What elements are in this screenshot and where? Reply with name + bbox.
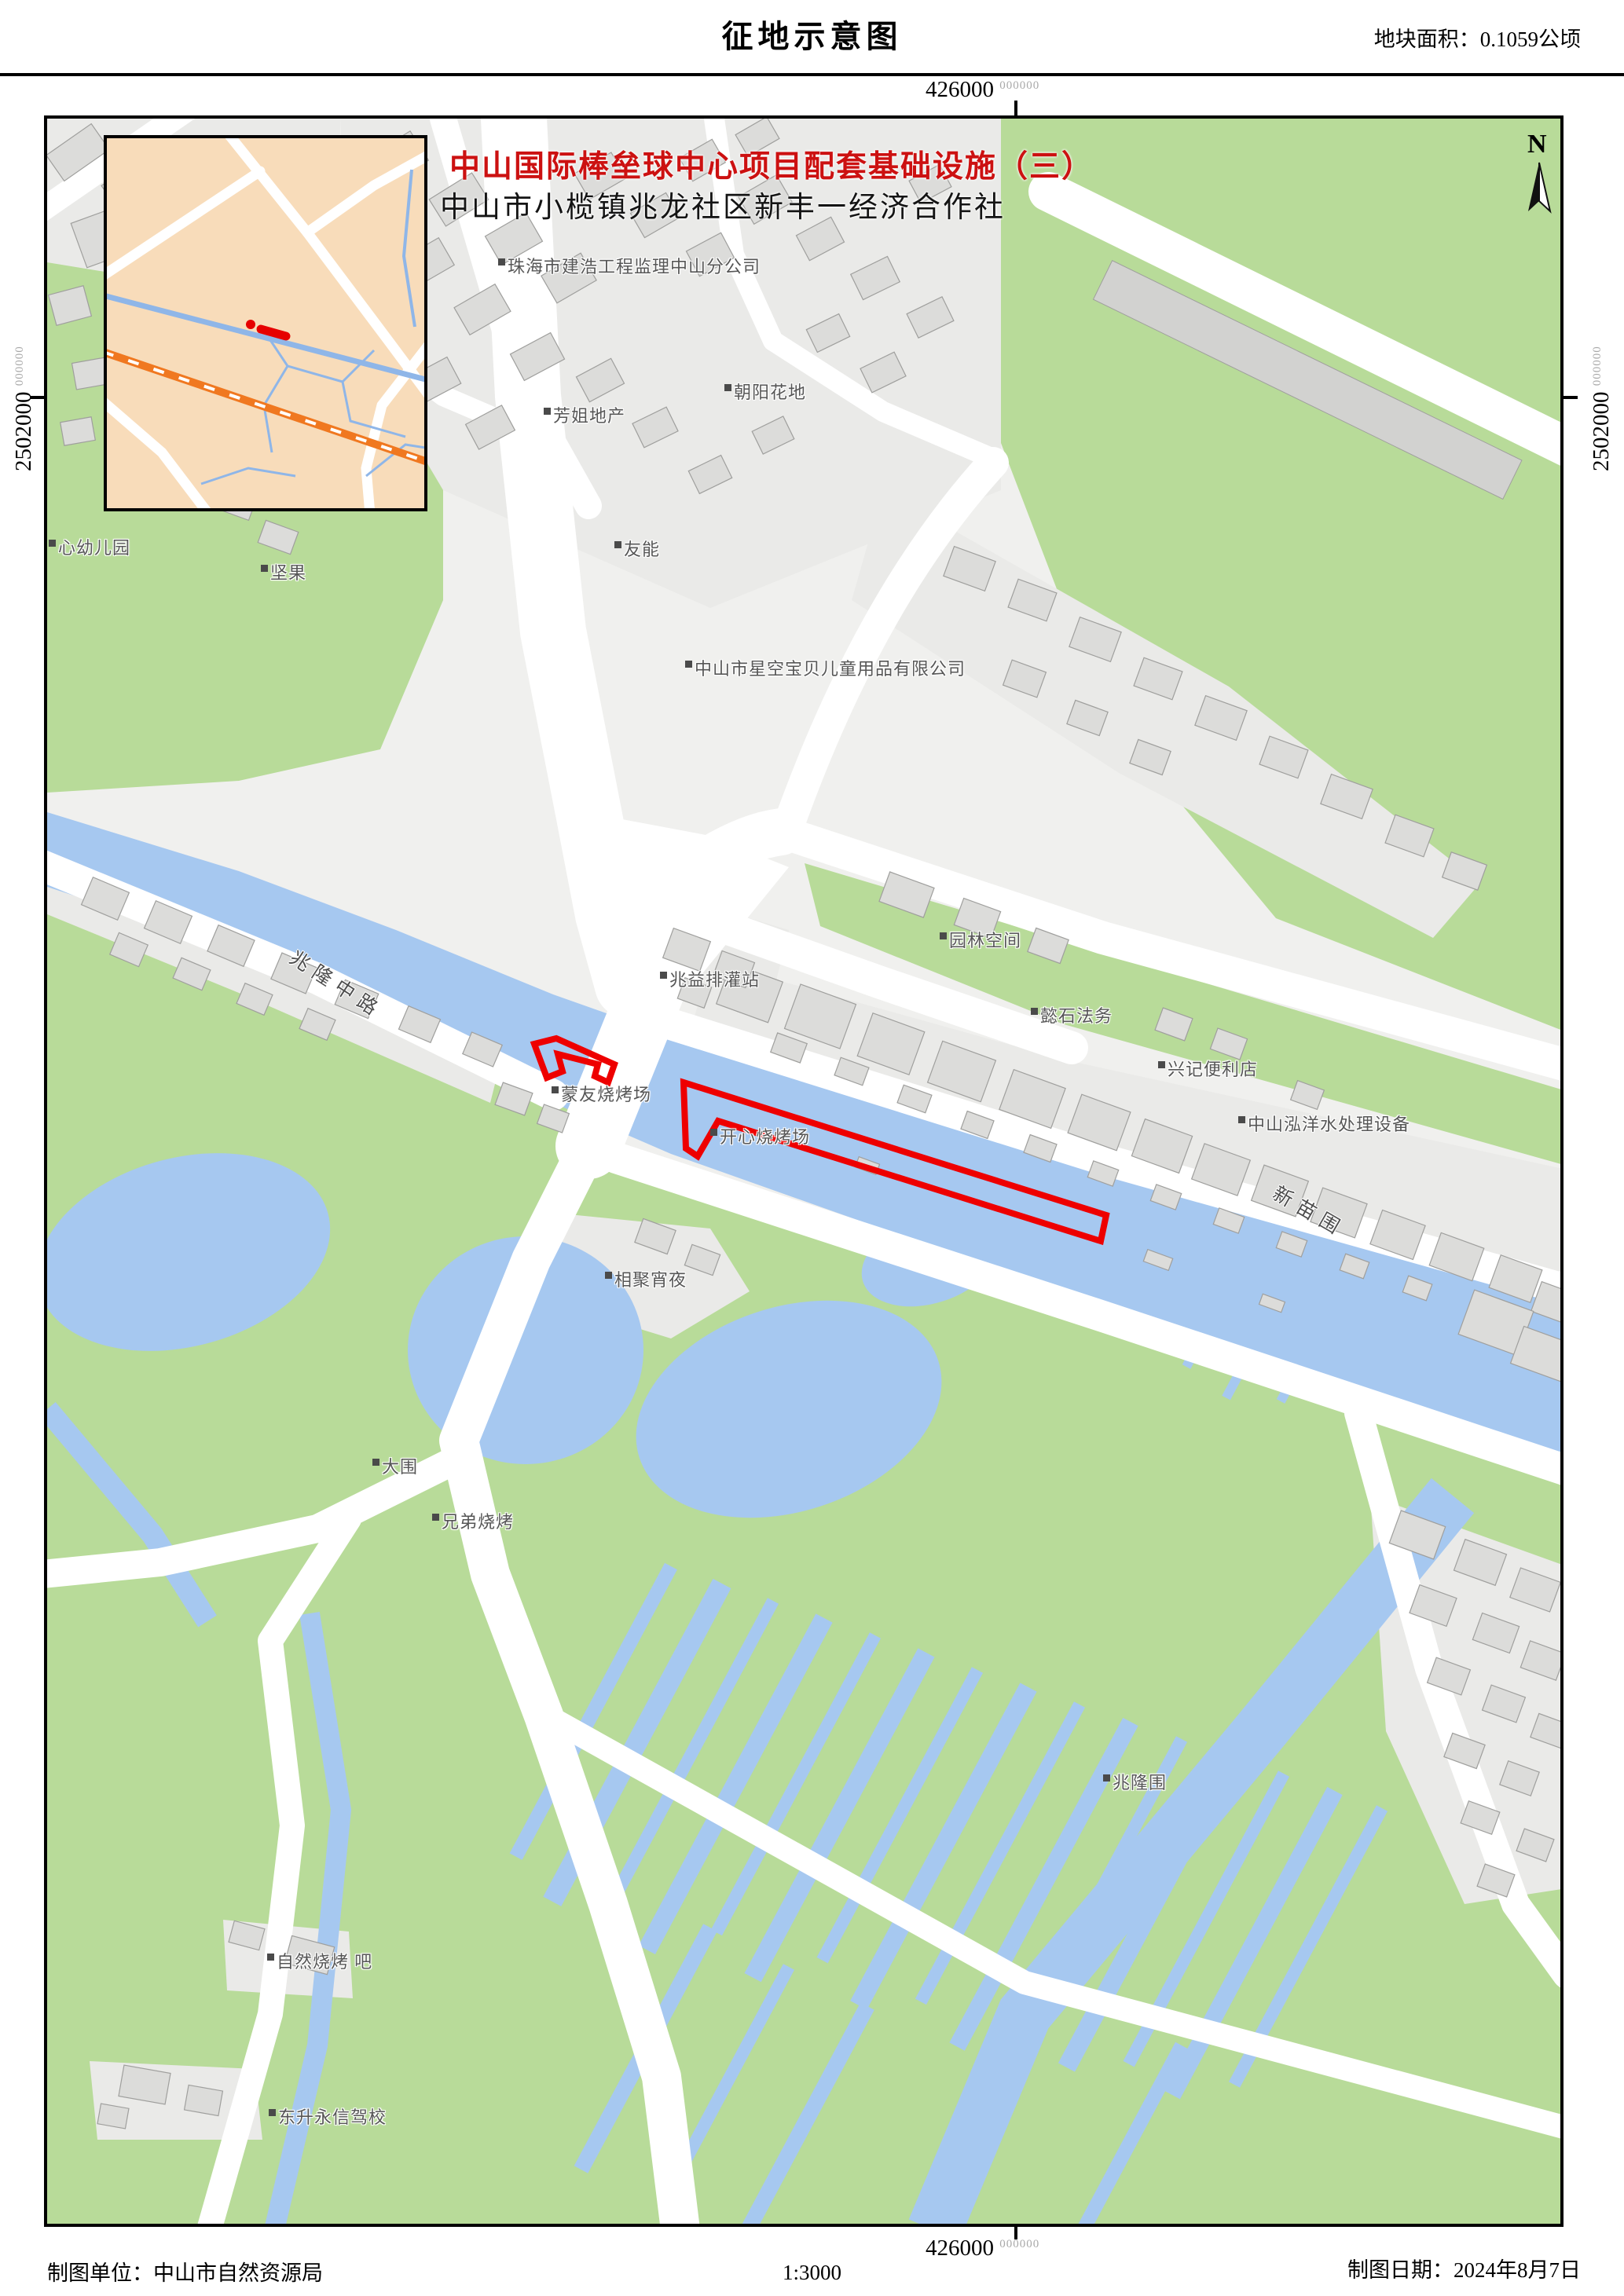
map-label-xingkong-baobei: 中山市星空宝贝儿童用品有限公司 xyxy=(685,655,966,680)
poi-label-text: 兆隆围 xyxy=(1113,1773,1167,1792)
poi-label-text: 心幼儿园 xyxy=(58,538,130,558)
grid-tick-bottom xyxy=(1014,2227,1017,2239)
poi-marker-icon xyxy=(552,1086,559,1093)
poi-label-text: 中山泓洋水处理设备 xyxy=(1248,1115,1410,1134)
grid-tick-right xyxy=(1564,396,1578,399)
map-label-yishi-fawu: 懿石法务 xyxy=(1031,1002,1113,1027)
parcel-area-label: 地块面积：0.1059公顷 xyxy=(1374,22,1581,53)
map-label-zhaoyi-paiguanzhan: 兆益排灌站 xyxy=(660,966,760,991)
project-subtitle: 中山市小榄镇兆龙社区新丰一经济合作社 xyxy=(440,183,1006,225)
poi-marker-icon xyxy=(49,540,56,547)
poi-label-text: 东升永信驾校 xyxy=(278,2107,387,2127)
map-label-youneng: 友能 xyxy=(614,536,660,561)
poi-label-text: 中山市星空宝贝儿童用品有限公司 xyxy=(695,659,966,679)
poi-marker-icon xyxy=(710,1129,717,1136)
poi-label-text: 坚果 xyxy=(270,563,306,583)
grid-coordinate-bottom: 426000 000000 xyxy=(926,2236,1039,2261)
poi-label-text: 珠海市建浩工程监理中山分公司 xyxy=(508,257,761,276)
map-label-zhaolong-wei: 兆隆围 xyxy=(1103,1769,1167,1794)
poi-marker-icon xyxy=(685,661,692,668)
poi-label-text: 大围 xyxy=(382,1457,418,1477)
land-acquisition-map-document: 征地示意图 地块面积：0.1059公顷 426000 000000 426000… xyxy=(0,0,1624,2296)
poi-label-text: 开心烧烤场 xyxy=(720,1127,810,1147)
map-label-chaoyang-huadi: 朝阳花地 xyxy=(724,379,806,404)
poi-label-text: 园林空间 xyxy=(949,931,1021,950)
poi-marker-icon xyxy=(660,972,667,979)
map-label-fangjie-dichan: 芳姐地产 xyxy=(544,402,625,427)
map-label-xiongdi-shaokao: 兄弟烧烤 xyxy=(432,1508,514,1533)
poi-marker-icon xyxy=(724,384,731,391)
inset-map-graphic xyxy=(107,138,427,511)
poi-marker-icon xyxy=(940,932,947,939)
poi-marker-icon xyxy=(432,1514,439,1521)
map-label-xin-youeryuan: 心幼儿园 xyxy=(49,534,130,559)
poi-marker-icon xyxy=(372,1459,379,1466)
map-label-ziran-shaokao: 自然烧烤 吧 xyxy=(267,1948,372,1973)
poi-label-text: 自然烧烤 吧 xyxy=(277,1952,372,1972)
map-frame: 中山国际棒垒球中心项目配套基础设施（三） 中山市小榄镇兆龙社区新丰一经济合作社 … xyxy=(44,115,1564,2227)
poi-marker-icon xyxy=(1158,1061,1165,1068)
map-label-zhuhai-jianhao: 珠海市建浩工程监理中山分公司 xyxy=(498,253,761,278)
map-label-dawei: 大围 xyxy=(372,1453,418,1478)
grid-tick-left xyxy=(30,396,44,399)
poi-marker-icon xyxy=(1238,1116,1245,1123)
poi-label-text: 兄弟烧烤 xyxy=(442,1512,514,1532)
poi-marker-icon xyxy=(498,258,505,265)
north-arrow: N xyxy=(1513,130,1564,224)
map-label-dongsheng-jiaxiao: 东升永信驾校 xyxy=(269,2104,387,2129)
title-divider xyxy=(0,73,1624,76)
poi-marker-icon xyxy=(267,1954,274,1961)
poi-label-text: 蒙友烧烤场 xyxy=(561,1085,651,1104)
map-label-kaixin-shaokaochang: 开心烧烤场 xyxy=(710,1123,810,1148)
map-label-hongyang-shuichuli: 中山泓洋水处理设备 xyxy=(1238,1111,1410,1136)
poi-label-text: 懿石法务 xyxy=(1040,1006,1113,1026)
grid-coordinate-right: 2502000 000000 xyxy=(1589,346,1615,471)
poi-label-text: 兴记便利店 xyxy=(1168,1060,1258,1079)
poi-marker-icon xyxy=(614,541,621,548)
poi-marker-icon xyxy=(1103,1774,1110,1782)
poi-marker-icon xyxy=(1031,1008,1038,1015)
poi-label-text: 朝阳花地 xyxy=(734,383,806,402)
footer-date: 制图日期：2024年8月7日 xyxy=(1347,2253,1581,2283)
grid-coordinate-left: 2502000 000000 xyxy=(11,346,37,471)
grid-tick-top xyxy=(1014,101,1017,115)
project-title: 中山国际棒垒球中心项目配套基础设施（三） xyxy=(449,142,1094,186)
map-label-jianguo: 坚果 xyxy=(261,559,306,584)
poi-marker-icon xyxy=(269,2109,276,2116)
north-label: N xyxy=(1527,130,1547,159)
poi-label-text: 兆益排灌站 xyxy=(669,970,760,990)
poi-label-text: 相聚宵夜 xyxy=(614,1270,687,1290)
poi-marker-icon xyxy=(605,1272,612,1279)
map-label-xingji-bianlidian: 兴记便利店 xyxy=(1158,1056,1258,1081)
poi-label-text: 芳姐地产 xyxy=(553,406,625,426)
map-label-yuanlin-kongjian: 园林空间 xyxy=(940,927,1021,952)
location-inset-map xyxy=(104,135,427,511)
poi-marker-icon xyxy=(544,408,551,415)
grid-coordinate-top: 426000 000000 xyxy=(926,77,1039,103)
map-label-xiangju-xiaoye: 相聚宵夜 xyxy=(605,1266,687,1291)
inset-roads xyxy=(107,138,427,511)
map-label-mengyou-shaokaochang: 蒙友烧烤场 xyxy=(552,1081,651,1106)
poi-marker-icon xyxy=(261,565,268,572)
poi-label-text: 友能 xyxy=(624,540,660,559)
